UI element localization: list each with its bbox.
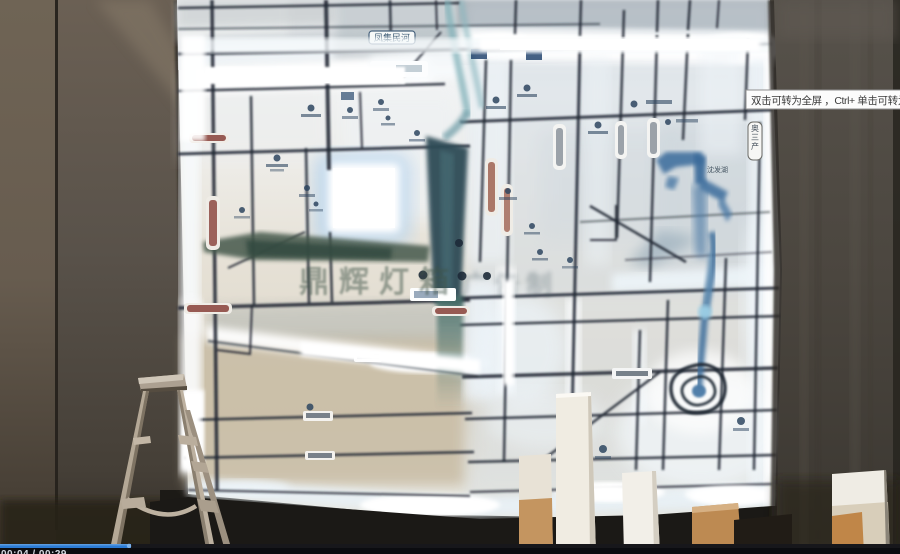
svg-text:鼎辉灯箱: 鼎辉灯箱 xyxy=(299,266,459,299)
svg-text:00:04 / 00:29: 00:04 / 00:29 xyxy=(1,549,67,554)
svg-text:奥: 奥 xyxy=(751,123,759,133)
svg-text:沈发湖: 沈发湖 xyxy=(707,165,728,174)
svg-text:双击可转为全屏 ，Ctrl+ 单击可转为: 双击可转为全屏 ，Ctrl+ 单击可转为 xyxy=(751,94,900,107)
svg-text:三: 三 xyxy=(751,133,759,142)
svg-text:产: 产 xyxy=(751,141,759,151)
